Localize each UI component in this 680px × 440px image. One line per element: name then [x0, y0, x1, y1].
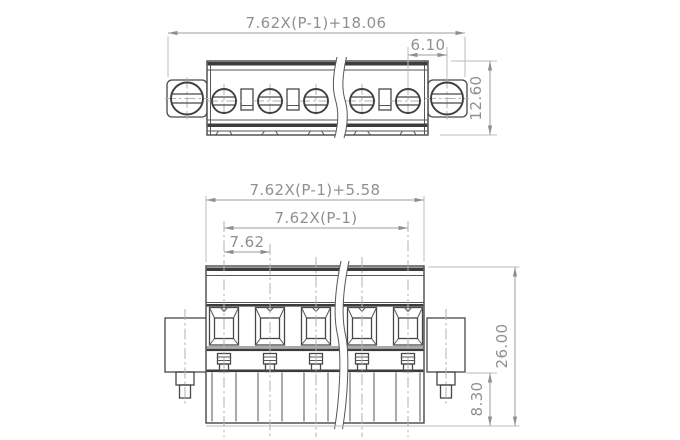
dim-mount-offset-label: 6.10 [411, 36, 446, 54]
dim-front-body-width-label: 7.62X(P-1)+5.58 [249, 181, 380, 199]
left-flange-screw [165, 78, 209, 120]
dim-pitch: 7.62 [224, 233, 270, 252]
front-left-mount-flange [165, 318, 207, 372]
bottom-edge-band [208, 124, 428, 128]
terminal-block-drawing: 7.62X(P-1)+18.06 6.10 12.60 7.62X(P-1)+5… [0, 0, 680, 440]
right-flange-screw [425, 78, 469, 120]
dim-lower-height-label: 8.30 [468, 382, 486, 417]
front-top-band [207, 268, 424, 272]
dim-lower-height: 8.30 [466, 373, 497, 426]
front-mid-band [207, 304, 424, 307]
dim-pole-span: 7.62X(P-1) [224, 209, 408, 228]
front-view [165, 221, 465, 437]
dim-top-depth-label: 12.60 [467, 76, 485, 121]
top-view [165, 57, 469, 138]
top-edge-band [208, 62, 428, 66]
below-ports-band [207, 349, 424, 352]
dim-top-overall-width-label: 7.62X(P-1)+18.06 [246, 14, 387, 32]
dim-front-height-label: 26.00 [493, 324, 511, 369]
dim-pole-span-label: 7.62X(P-1) [274, 209, 357, 227]
dim-pitch-label: 7.62 [230, 233, 265, 251]
